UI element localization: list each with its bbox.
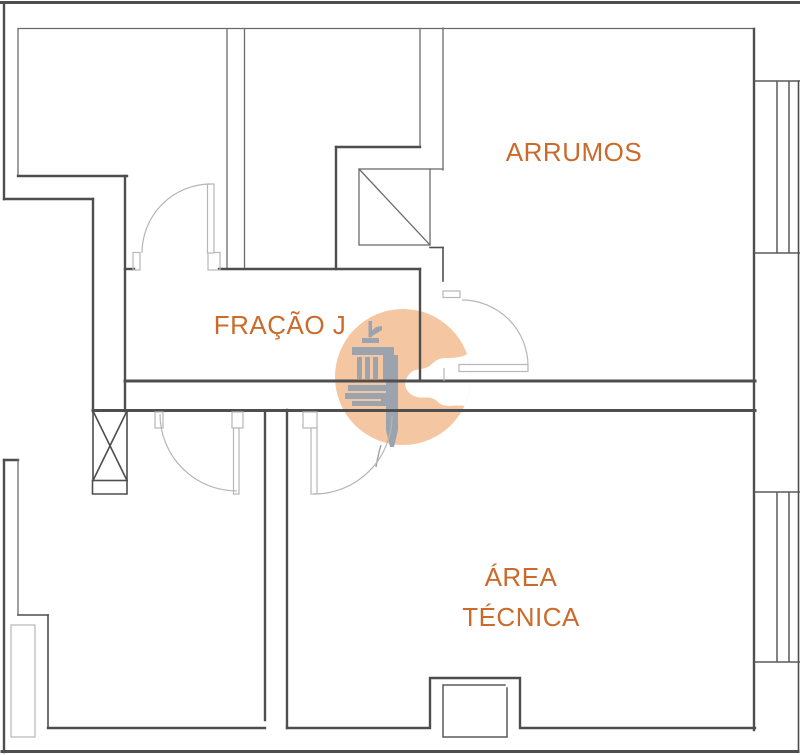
floor-plan-drawing	[0, 0, 800, 755]
shaft-x-box	[93, 411, 128, 494]
room-label-area-tecnica-line2: TÉCNICA	[462, 597, 580, 637]
wall-fixture	[11, 625, 35, 737]
window-right-bottom	[755, 492, 800, 662]
floor-plan: ARRUMOS FRAÇÃO J ÁREA TÉCNICA	[0, 0, 800, 755]
shaft-diagonal-box	[359, 169, 443, 245]
duct-box	[443, 685, 507, 737]
room-label-fracao-j: FRAÇÃO J	[214, 305, 347, 345]
door-bottom-left-room	[155, 412, 243, 494]
room-label-area-tecnica-line1: ÁREA	[462, 557, 580, 597]
watermark	[335, 309, 472, 467]
room-label-area-tecnica: ÁREA TÉCNICA	[462, 557, 580, 637]
window-right-top	[755, 81, 800, 253]
room-label-arrumos: ARRUMOS	[506, 132, 642, 172]
door-corridor-top	[133, 184, 220, 270]
